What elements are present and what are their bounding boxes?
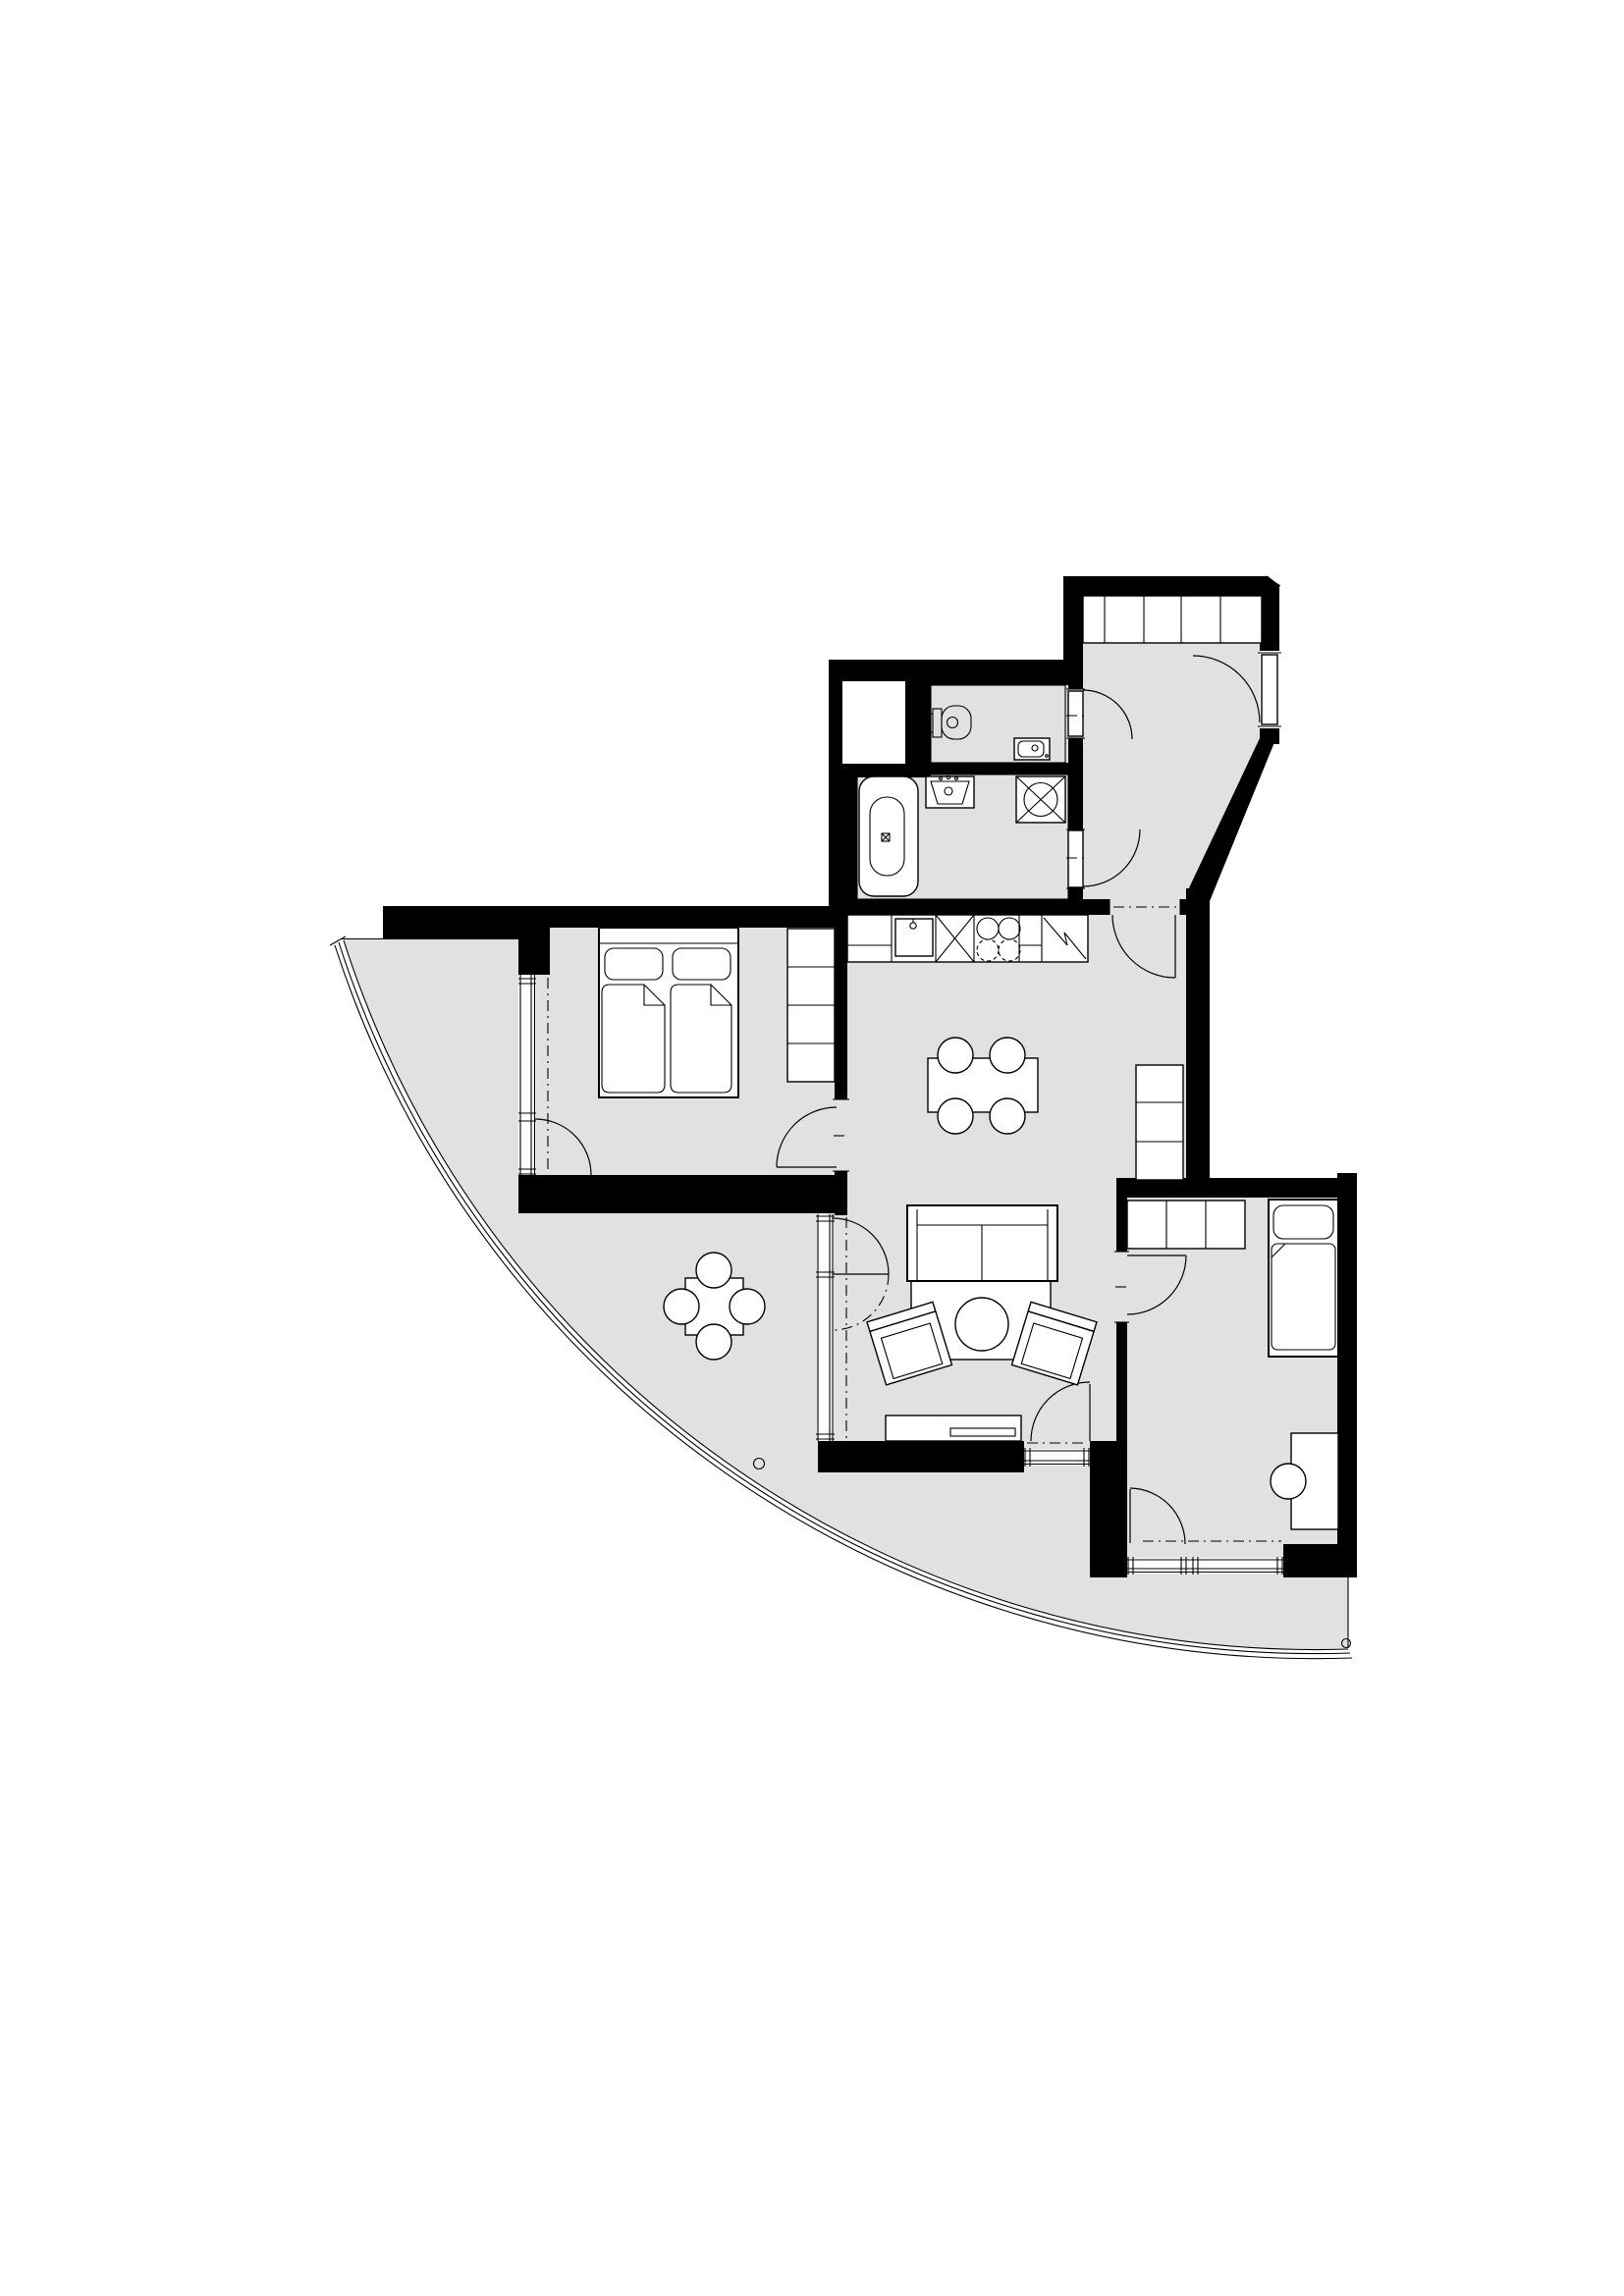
- entrance-door-leaf: [1262, 655, 1277, 724]
- wall-wc-bath-divider: [829, 763, 1070, 774]
- wall-kids-west-lower: [1090, 1441, 1127, 1577]
- wall-entry-north: [1063, 576, 1279, 597]
- wall-wc-east-b: [1068, 738, 1083, 829]
- wall-bedroom-north-right: [550, 906, 847, 928]
- tv-lowboard: [886, 1415, 1021, 1441]
- wall-kids-east: [1337, 1173, 1357, 1577]
- bathtub: [859, 776, 918, 896]
- wall-kids-west-b: [1116, 1322, 1127, 1441]
- dining-chair: [990, 1098, 1025, 1134]
- coffee-table: [955, 1298, 1008, 1351]
- living-south-door-void: [1024, 1449, 1090, 1466]
- balcony-chair: [696, 1253, 731, 1288]
- wall-bath-south: [829, 899, 1083, 915]
- wall-kids-south: [1283, 1544, 1357, 1577]
- wall-corridor-south-right: [1180, 899, 1210, 915]
- wall-entry-east-upper: [1260, 576, 1279, 653]
- kids-wardrobe: [1127, 1201, 1245, 1249]
- kitchen-counter: [847, 915, 1088, 962]
- wc-hand-basin: [1014, 738, 1050, 760]
- sofa: [907, 1205, 1057, 1281]
- washing-machine: [1016, 776, 1065, 823]
- floor-plan-drawing: [0, 0, 1624, 2296]
- wall-bedroom-south: [518, 1175, 847, 1213]
- bathroom-door-leaf: [1068, 830, 1083, 887]
- balcony-chair: [696, 1324, 731, 1360]
- balcony-chair: [664, 1289, 699, 1324]
- sideboard: [1136, 1065, 1183, 1180]
- wall-corridor-south-left: [1083, 899, 1110, 915]
- wall-entry-west: [1063, 576, 1083, 660]
- dining-chair: [990, 1038, 1025, 1073]
- bedroom: [599, 928, 835, 1097]
- wall-living-south: [818, 1441, 1024, 1472]
- bathroom-washbasin: [926, 775, 974, 808]
- bedroom-window-void: [518, 975, 536, 1175]
- wall-wc-east-c: [1068, 888, 1083, 899]
- entry-hall: [1083, 596, 1262, 643]
- wall-bedroom-nw-corner: [518, 906, 550, 975]
- dining-chair: [938, 1098, 973, 1134]
- desk-chair: [1271, 1464, 1306, 1499]
- double-bed: [599, 928, 738, 1097]
- wall-living-east: [1186, 888, 1210, 1180]
- wall-kids-west-a: [1116, 1198, 1127, 1252]
- single-bed: [1269, 1200, 1338, 1357]
- wc-door-leaf: [1068, 691, 1083, 736]
- wall-bedroom-east-upper: [835, 906, 847, 1099]
- entry-wardrobe: [1083, 596, 1262, 643]
- balcony-chair: [730, 1289, 765, 1324]
- living-west-glazing-void: [817, 1214, 834, 1441]
- wall-wc-east-a: [1068, 660, 1083, 689]
- dining-chair: [938, 1038, 973, 1073]
- floor-plan-page: [0, 0, 1624, 2296]
- wall-bedroom-north-left: [383, 906, 520, 939]
- installation-shaft: [842, 681, 905, 764]
- wall-bath-west: [829, 774, 857, 915]
- wall-kids-north: [1116, 1178, 1357, 1198]
